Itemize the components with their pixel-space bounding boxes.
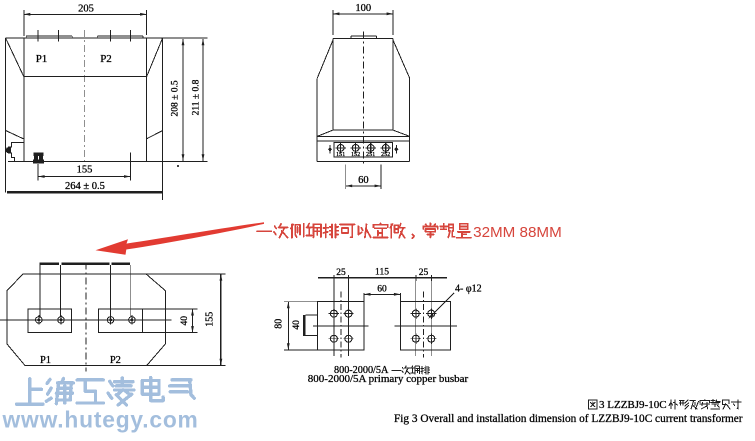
svg-text:1S1: 1S1: [336, 152, 345, 158]
svg-text:40: 40: [180, 316, 190, 326]
svg-text:25: 25: [336, 268, 346, 278]
svg-text:1S2: 1S2: [351, 152, 360, 158]
svg-text:205: 205: [78, 4, 94, 15]
svg-text:P1: P1: [36, 53, 48, 65]
svg-text:60: 60: [377, 285, 387, 295]
svg-text:4- φ12: 4- φ12: [455, 283, 482, 294]
svg-text:40: 40: [292, 320, 302, 330]
svg-text:32MM 88MM: 32MM 88MM: [473, 224, 562, 241]
svg-text:115: 115: [375, 268, 389, 278]
svg-text:3 LZZBJ9-10C: 3 LZZBJ9-10C: [599, 399, 667, 411]
svg-text:60: 60: [358, 175, 369, 186]
svg-text:P2: P2: [110, 355, 121, 366]
svg-text:155: 155: [205, 312, 216, 327]
svg-text:www.hutegy.com: www.hutegy.com: [2, 406, 199, 432]
svg-text:25: 25: [419, 268, 429, 278]
svg-text:264 ± 0.5: 264 ± 0.5: [65, 181, 105, 192]
svg-text:155: 155: [77, 164, 93, 175]
svg-text:Fig 3 Overall and installation: Fig 3 Overall and installation dimension…: [394, 413, 743, 425]
svg-text:211 ± 0.8: 211 ± 0.8: [191, 79, 201, 115]
svg-text:2S2: 2S2: [381, 152, 390, 158]
svg-text:100: 100: [355, 3, 371, 14]
svg-text:P1: P1: [40, 355, 51, 366]
svg-text:P2: P2: [100, 53, 112, 65]
svg-text:2S1: 2S1: [366, 152, 375, 158]
svg-text:208 ± 0.5: 208 ± 0.5: [171, 80, 181, 116]
svg-text:800-2000/5A primary copper bus: 800-2000/5A primary copper busbar: [308, 373, 469, 385]
svg-text:80: 80: [273, 319, 284, 329]
